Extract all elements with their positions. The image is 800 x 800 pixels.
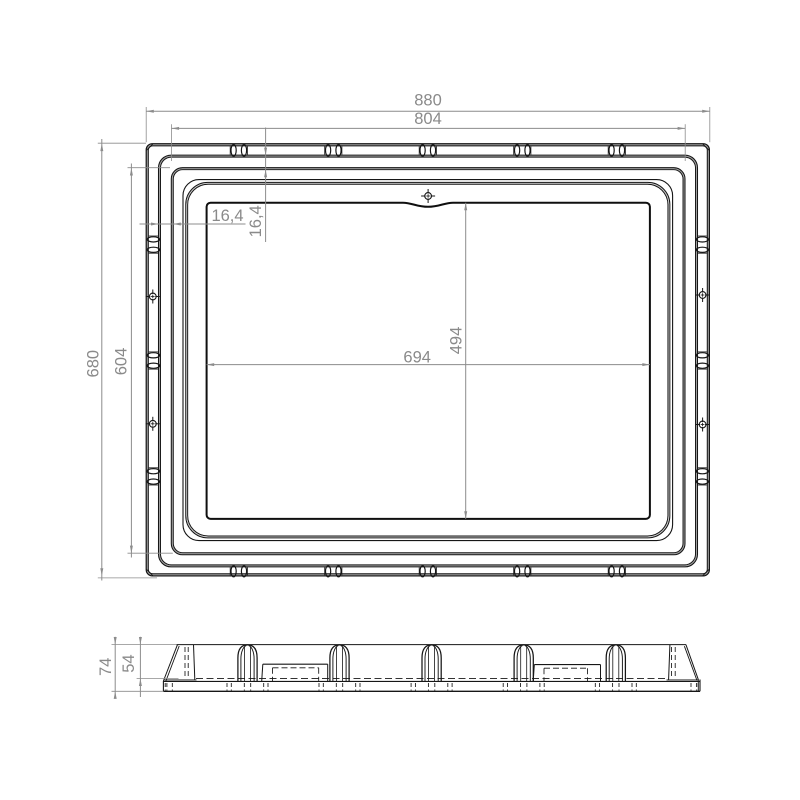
- svg-text:604: 604: [113, 348, 131, 376]
- svg-text:494: 494: [448, 327, 466, 355]
- svg-text:16,4: 16,4: [211, 207, 243, 225]
- svg-text:16,4: 16,4: [247, 205, 265, 237]
- svg-text:54: 54: [120, 654, 138, 672]
- svg-text:680: 680: [84, 350, 102, 378]
- svg-text:880: 880: [414, 91, 442, 109]
- svg-text:694: 694: [403, 348, 431, 366]
- svg-text:74: 74: [97, 658, 115, 676]
- svg-text:804: 804: [414, 110, 442, 128]
